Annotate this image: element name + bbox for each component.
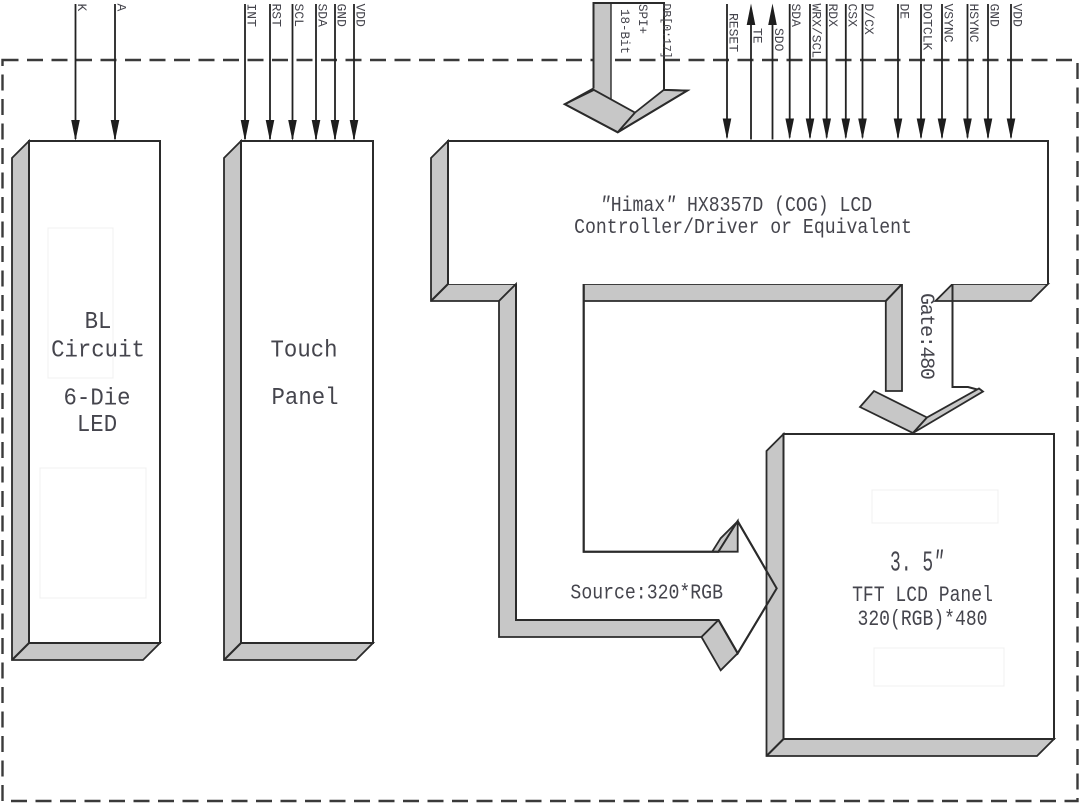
svg-text:BL: BL	[85, 308, 112, 335]
svg-text:DE: DE	[897, 4, 912, 20]
svg-text:6-Die: 6-Die	[64, 385, 131, 412]
svg-text:D/CX: D/CX	[861, 4, 876, 35]
svg-text:Touch: Touch	[271, 337, 338, 364]
svg-text:VDD: VDD	[353, 4, 368, 28]
svg-text:HSYNC: HSYNC	[966, 4, 981, 43]
svg-text:Controller/Driver or Equivalen: Controller/Driver or Equivalent	[574, 216, 912, 240]
svg-text:WRX/SCL: WRX/SCL	[809, 4, 824, 59]
svg-text:RESET: RESET	[726, 13, 741, 52]
svg-text:VSYNC: VSYNC	[941, 4, 956, 43]
svg-text:A: A	[114, 4, 129, 12]
svg-text:SDO: SDO	[771, 28, 786, 52]
svg-text:RDX: RDX	[825, 4, 840, 28]
svg-text:″Himax″ HX8357D (COG) LCD: ″Himax″ HX8357D (COG) LCD	[600, 194, 872, 218]
svg-text:18-Bit: 18-Bit	[617, 9, 631, 54]
svg-text:LED: LED	[77, 411, 117, 438]
svg-text:SCL: SCL	[291, 4, 306, 27]
svg-text:GND: GND	[334, 4, 349, 28]
svg-text:Circuit: Circuit	[51, 337, 145, 364]
svg-text:DOTCLK: DOTCLK	[920, 4, 935, 51]
svg-text:Source:320*RGB: Source:320*RGB	[570, 581, 723, 605]
svg-text:SPI+: SPI+	[635, 4, 649, 34]
svg-text:RST: RST	[269, 4, 284, 28]
svg-text:320(RGB)*480: 320(RGB)*480	[857, 607, 987, 632]
svg-text:TFT LCD Panel: TFT LCD Panel	[852, 583, 993, 608]
svg-text:SDA: SDA	[315, 4, 330, 28]
svg-text:K: K	[74, 4, 89, 12]
svg-text:VDD: VDD	[1010, 4, 1025, 28]
svg-text:Panel: Panel	[272, 384, 339, 411]
svg-text:3. 5″: 3. 5″	[890, 548, 944, 580]
svg-text:INT: INT	[244, 4, 259, 28]
svg-text:DB[0:17]: DB[0:17]	[659, 4, 672, 59]
svg-text:GND: GND	[987, 4, 1002, 28]
svg-text:CSX: CSX	[844, 4, 859, 28]
svg-text:Gate:480: Gate:480	[914, 293, 937, 379]
svg-text:SDA: SDA	[788, 4, 803, 28]
svg-text:TE: TE	[750, 28, 765, 44]
